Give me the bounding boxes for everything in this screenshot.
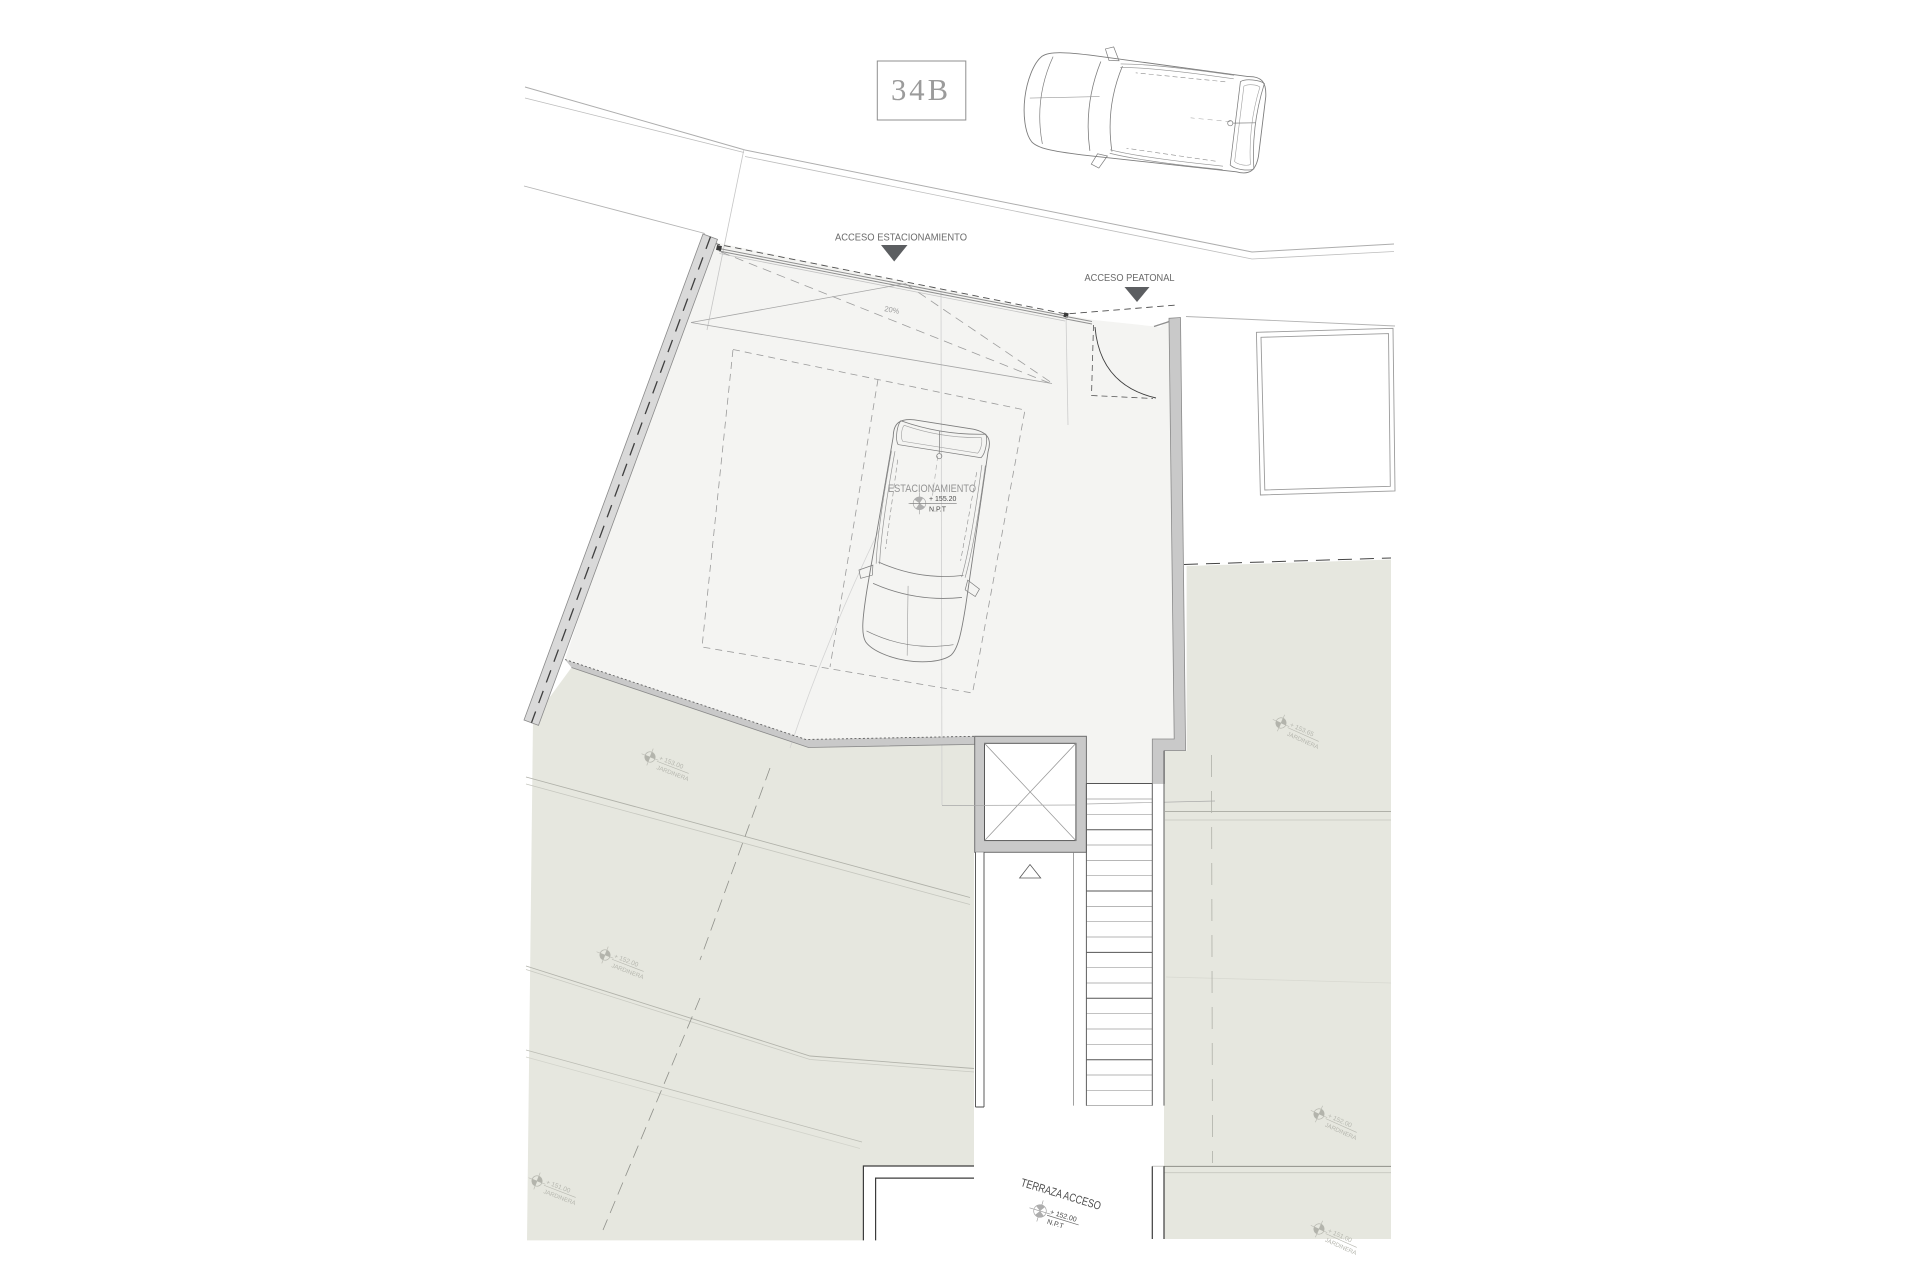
svg-text:ACCESO ESTACIONAMIENTO: ACCESO ESTACIONAMIENTO	[835, 232, 967, 244]
svg-text:+ 155.20: + 155.20	[929, 496, 957, 503]
svg-text:ACCESO PEATONAL: ACCESO PEATONAL	[1085, 272, 1175, 284]
svg-text:N.P.T: N.P.T	[929, 507, 947, 514]
svg-text:ESTACIONAMIENTO: ESTACIONAMIENTO	[888, 483, 976, 495]
svg-text:34B: 34B	[891, 72, 951, 107]
